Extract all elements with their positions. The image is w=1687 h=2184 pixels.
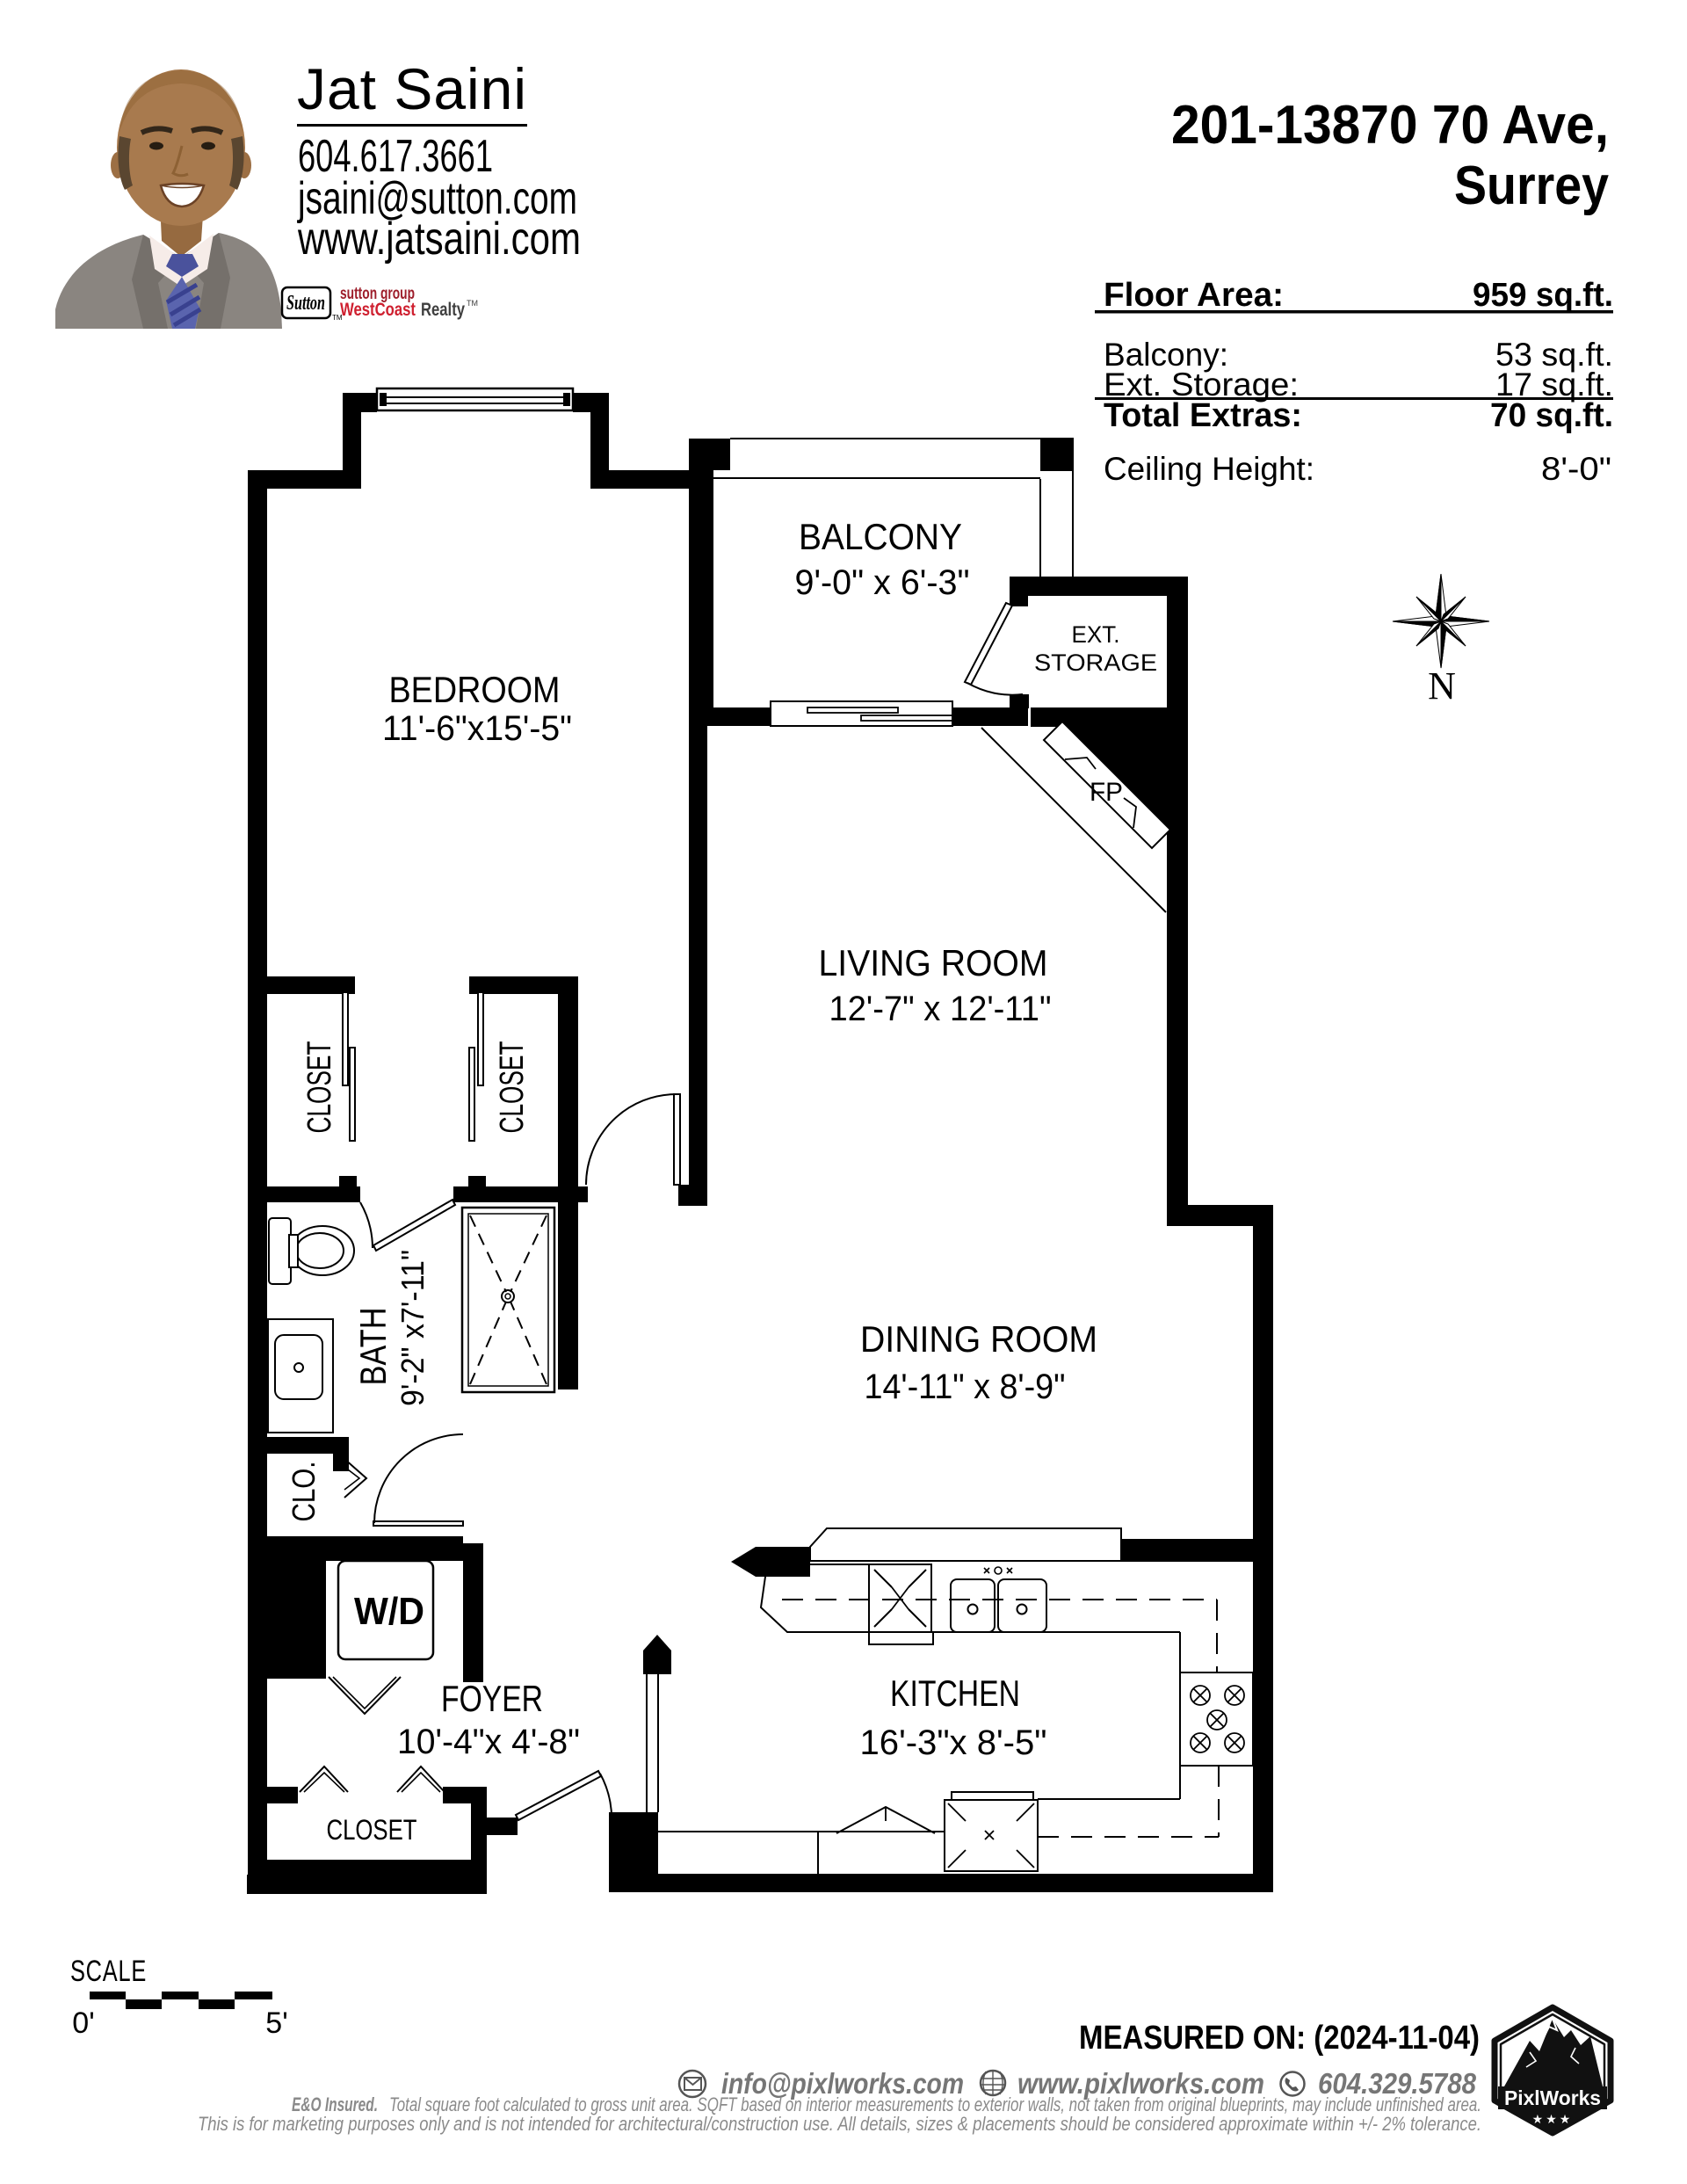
- svg-text:N: N: [1428, 664, 1456, 707]
- svg-text:Sutton: Sutton: [286, 292, 325, 315]
- svg-text:CLOSET: CLOSET: [327, 1814, 417, 1846]
- svg-text:201-13870 70 Ave,: 201-13870 70 Ave,: [1171, 95, 1609, 156]
- svg-text:PixlWorks: PixlWorks: [1504, 2086, 1601, 2109]
- svg-text:www.jatsaini.com: www.jatsaini.com: [297, 214, 581, 265]
- svg-text:10'-4"x 4'-8": 10'-4"x 4'-8": [397, 1723, 580, 1761]
- svg-text:9'-2" x7'-11": 9'-2" x7'-11": [395, 1250, 431, 1406]
- svg-text:CLOSET: CLOSET: [494, 1041, 531, 1134]
- svg-text:MEASURED ON: (2024-11-04): MEASURED ON: (2024-11-04): [1079, 2020, 1480, 2057]
- svg-text:11'-6"x15'-5": 11'-6"x15'-5": [382, 709, 572, 748]
- svg-text:FOYER: FOYER: [441, 1678, 543, 1719]
- svg-text:9'-0" x 6'-3": 9'-0" x 6'-3": [795, 563, 970, 602]
- svg-text:70 sq.ft.: 70 sq.ft.: [1490, 397, 1613, 434]
- svg-text:TM: TM: [467, 299, 478, 308]
- svg-text:CLO.: CLO.: [286, 1462, 322, 1522]
- svg-text:FP: FP: [1090, 778, 1123, 807]
- svg-text:5': 5': [265, 2006, 287, 2040]
- svg-text:Total Extras:: Total Extras:: [1104, 397, 1302, 434]
- svg-text:★★★: ★★★: [1532, 2112, 1574, 2126]
- svg-text:959 sq.ft.: 959 sq.ft.: [1473, 277, 1613, 314]
- svg-text:BALCONY: BALCONY: [799, 516, 962, 557]
- svg-text:CLOSET: CLOSET: [301, 1041, 338, 1134]
- svg-text:Ceiling Height:: Ceiling Height:: [1104, 451, 1314, 487]
- svg-text:DINING ROOM: DINING ROOM: [860, 1318, 1097, 1360]
- svg-text:BATH: BATH: [352, 1308, 394, 1386]
- svg-text:14'-11" x 8'-9": 14'-11" x 8'-9": [865, 1368, 1066, 1406]
- svg-text:Jat Saini: Jat Saini: [297, 56, 527, 121]
- svg-text:STORAGE: STORAGE: [1034, 649, 1157, 676]
- svg-text:8'-0": 8'-0": [1541, 451, 1611, 487]
- svg-text:Floor Area:: Floor Area:: [1104, 277, 1284, 314]
- svg-text:LIVING ROOM: LIVING ROOM: [819, 942, 1048, 983]
- svg-text:Surrey: Surrey: [1454, 156, 1609, 216]
- svg-text:16'-3"x 8'-5": 16'-3"x 8'-5": [860, 1723, 1047, 1762]
- svg-text:This is for marketing purposes: This is for marketing purposes only and …: [198, 2113, 1481, 2135]
- svg-text:EXT.: EXT.: [1072, 621, 1120, 648]
- svg-text:Realty: Realty: [421, 300, 465, 320]
- svg-text:WestCoast: WestCoast: [340, 300, 416, 320]
- svg-text:KITCHEN: KITCHEN: [890, 1672, 1020, 1714]
- svg-text:12'-7" x 12'-11": 12'-7" x 12'-11": [829, 990, 1052, 1028]
- svg-text:0': 0': [72, 2006, 94, 2040]
- svg-text:SCALE: SCALE: [70, 1955, 147, 1988]
- svg-text:W/D: W/D: [354, 1590, 424, 1633]
- svg-text:BEDROOM: BEDROOM: [389, 669, 561, 710]
